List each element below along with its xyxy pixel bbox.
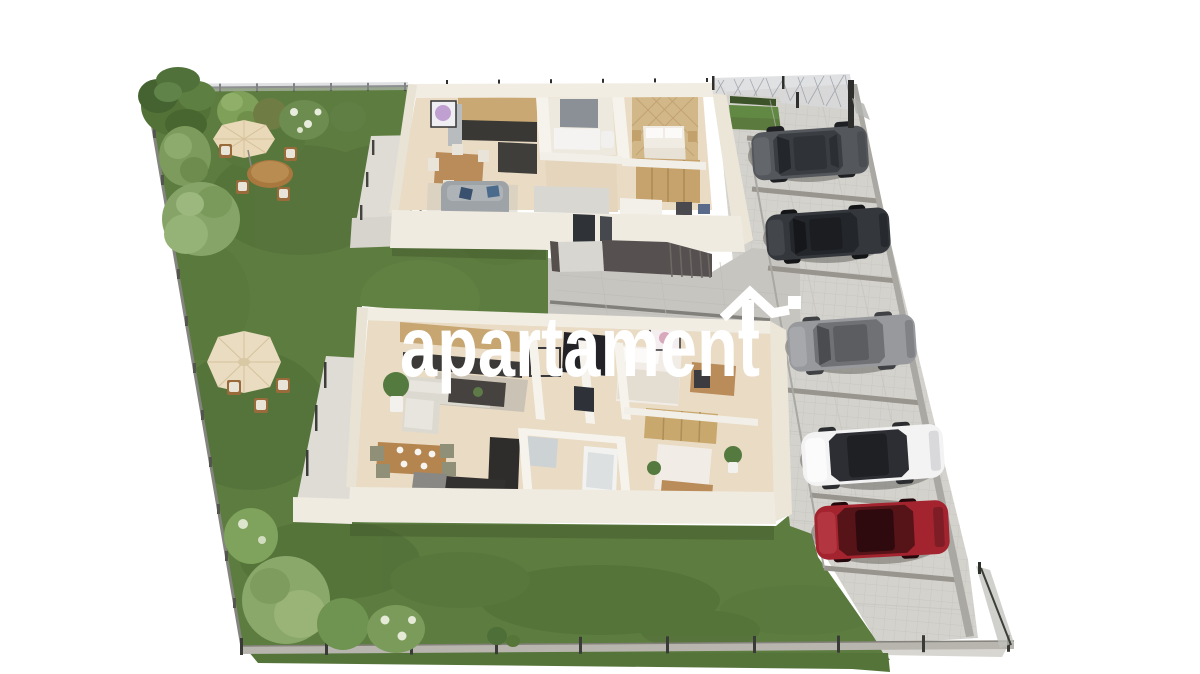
svg-text:apartament: apartament: [400, 300, 760, 395]
